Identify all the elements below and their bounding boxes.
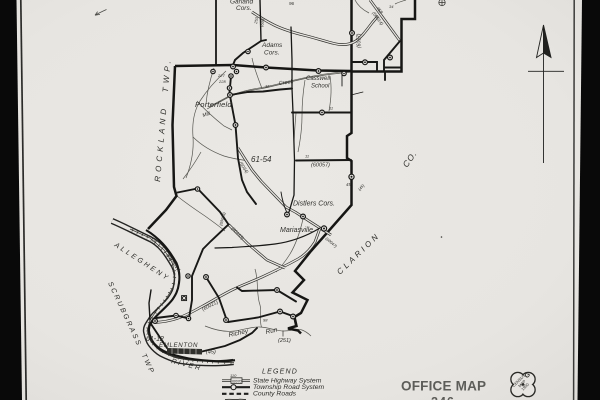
svg-text:11: 11 — [265, 84, 269, 89]
svg-text:11: 11 — [329, 106, 333, 111]
svg-text:EMLENTON: EMLENTON — [159, 342, 198, 349]
svg-text:Cors.: Cors. — [264, 50, 280, 57]
svg-text:Mariasville: Mariasville — [280, 227, 313, 234]
svg-text:(45): (45) — [206, 350, 216, 356]
svg-text:Porterfield: Porterfield — [195, 100, 232, 109]
svg-text:Garland: Garland — [230, 0, 254, 6]
svg-text:OFFICE MAP: OFFICE MAP — [401, 379, 486, 394]
svg-text:228: 228 — [218, 79, 226, 84]
svg-text:96: 96 — [289, 1, 295, 6]
svg-text:11: 11 — [305, 154, 309, 159]
svg-text:Cors.: Cors. — [236, 5, 252, 12]
svg-text:(60057): (60057) — [311, 163, 330, 169]
svg-text:(6057): (6057) — [357, 33, 363, 48]
svg-text:60070: 60070 — [232, 379, 242, 383]
svg-text:County Roads: County Roads — [253, 391, 297, 398]
svg-text:45: 45 — [346, 182, 352, 187]
svg-text:Distlers Cors.: Distlers Cors. — [293, 201, 335, 208]
svg-text:34: 34 — [389, 4, 394, 9]
svg-text:110: 110 — [230, 373, 237, 378]
svg-text:LEGEND: LEGEND — [262, 369, 298, 376]
svg-text:School: School — [311, 84, 330, 90]
svg-text:Adams: Adams — [261, 42, 283, 49]
svg-text:(251): (251) — [278, 338, 291, 344]
svg-text:98: 98 — [263, 318, 268, 323]
svg-text:227: 227 — [217, 73, 225, 78]
svg-text:Casswell: Casswell — [306, 76, 331, 82]
svg-text:61-54: 61-54 — [251, 155, 272, 164]
svg-text:246: 246 — [431, 395, 455, 400]
